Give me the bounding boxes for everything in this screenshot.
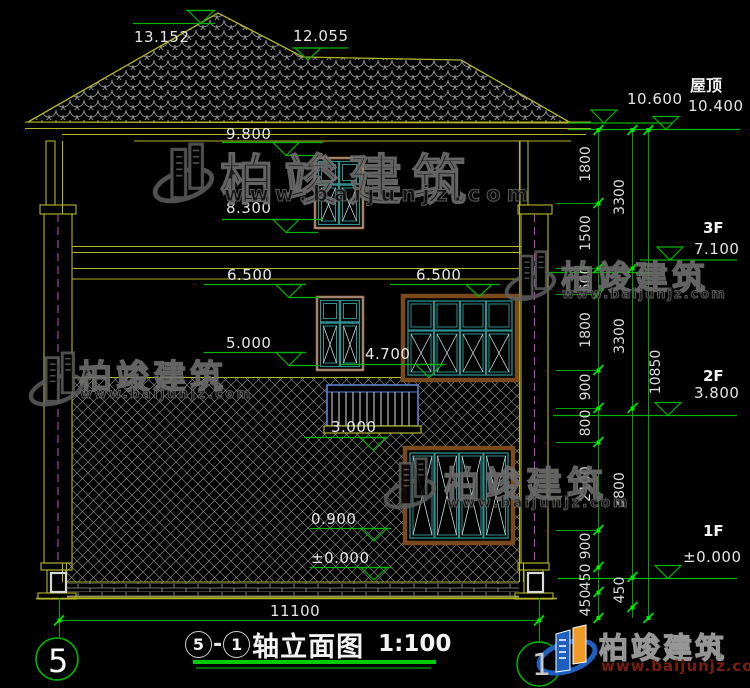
title-axis-to: 1 [223,631,250,658]
watermark-url-left: www.baijunjz.com [80,387,253,402]
window-2f-large [403,296,517,380]
dim-800: 800 [578,393,594,453]
watermark-url-top: www.baijunjz.com [224,182,535,206]
level-10600-label: 10.600 [627,90,683,108]
level-3000-label: 3.000 [331,418,376,436]
grid-bubble-right-number: 1 [532,648,551,683]
title-text: 轴立面图 [252,625,364,664]
grid-bubble-left-number: 5 [48,642,68,680]
dim-1800-b: 1800 [578,300,594,360]
watermark-url-right: www.baijunjz.com [562,287,727,302]
column-right-base-detail [528,573,543,592]
dim-3800: 3800 [612,460,628,520]
dim-3300-b: 3300 [612,306,628,366]
watermark-url-bottom: www.baijunjz.com [447,495,630,511]
floor-3f-label: 3F [703,219,724,237]
drawing-title: 5 - 1 轴立面图 1:100 [185,624,451,664]
level-0900-label: 0.900 [311,510,356,528]
level-3800-label: 3.800 [694,384,739,402]
window-2f-small [317,297,363,370]
dim-1800-a: 1800 [578,134,594,194]
level-10400-label: 10.400 [688,97,744,115]
level-0000-right-label: ±0.000 [683,548,742,566]
level-12055-label: 12.055 [293,27,349,45]
dim-width-11100: 11100 [270,602,320,620]
logo-url-text: www.baijunjz.com [601,657,750,675]
column-left-base-detail [51,573,66,592]
level-6500-right-label: 6.500 [416,266,461,284]
dim-450-c: 450 [612,560,628,620]
title-separator: - [213,632,222,657]
floor-1f-label: 1F [703,522,724,540]
base-brick-strip [67,582,519,597]
level-5000-label: 5.000 [226,334,271,352]
roof-label: 屋顶 [690,72,722,96]
cad-elevation-canvas: 13.152 12.055 9.800 8.300 6.500 6.500 5.… [0,0,750,688]
title-scale: 1:100 [378,631,451,657]
level-13152-label: 13.152 [134,28,190,46]
level-4700-label: 4.700 [365,345,410,363]
title-axis-from: 5 [185,631,212,658]
dim-total-10850: 10850 [648,342,664,402]
dim-450-b: 450 [578,573,594,633]
level-6500-left-label: 6.500 [227,266,272,284]
dim-3300-a: 3300 [612,167,628,227]
floor-2f-label: 2F [703,367,724,385]
level-0000-left-label: ±0.000 [311,549,370,567]
